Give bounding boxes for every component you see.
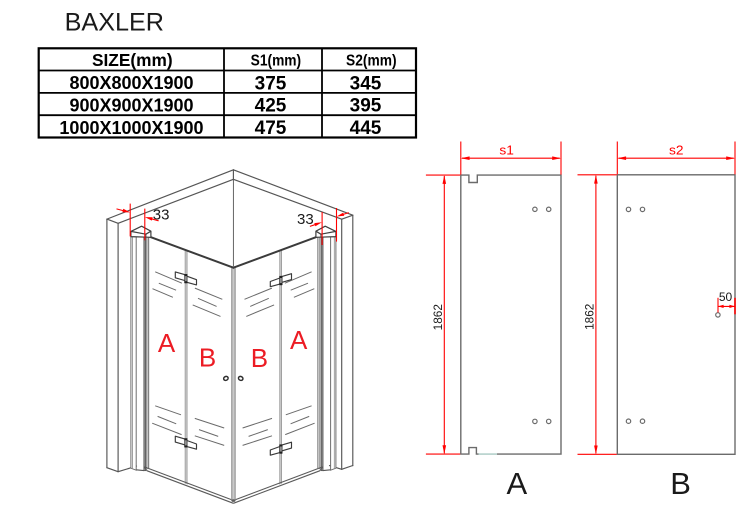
svg-text:B: B (670, 466, 691, 501)
svg-text:S2(mm): S2(mm) (346, 52, 397, 69)
svg-text:33: 33 (297, 211, 314, 228)
svg-text:A: A (507, 466, 528, 501)
svg-text:S1(mm): S1(mm) (251, 52, 302, 69)
svg-text:B: B (251, 343, 268, 373)
svg-text:SIZE(mm): SIZE(mm) (92, 50, 173, 70)
svg-text:445: 445 (350, 118, 382, 139)
svg-text:A: A (290, 325, 308, 355)
svg-text:50: 50 (719, 290, 733, 304)
svg-text:BAXLER: BAXLER (65, 9, 164, 37)
svg-text:900X900X1900: 900X900X1900 (69, 96, 193, 116)
svg-text:1862: 1862 (582, 304, 596, 330)
svg-text:1000X1000X1900: 1000X1000X1900 (59, 118, 203, 138)
svg-text:B: B (199, 343, 216, 373)
svg-text:A: A (158, 328, 176, 358)
svg-text:395: 395 (350, 96, 382, 117)
svg-text:475: 475 (255, 118, 287, 139)
svg-text:1862: 1862 (431, 304, 445, 330)
svg-text:s2: s2 (669, 143, 684, 157)
svg-text:s1: s1 (499, 143, 514, 157)
svg-text:345: 345 (350, 73, 382, 94)
svg-text:800X800X1900: 800X800X1900 (69, 73, 193, 93)
svg-text:425: 425 (255, 96, 287, 117)
svg-text:375: 375 (255, 73, 287, 94)
svg-text:33: 33 (153, 207, 170, 224)
